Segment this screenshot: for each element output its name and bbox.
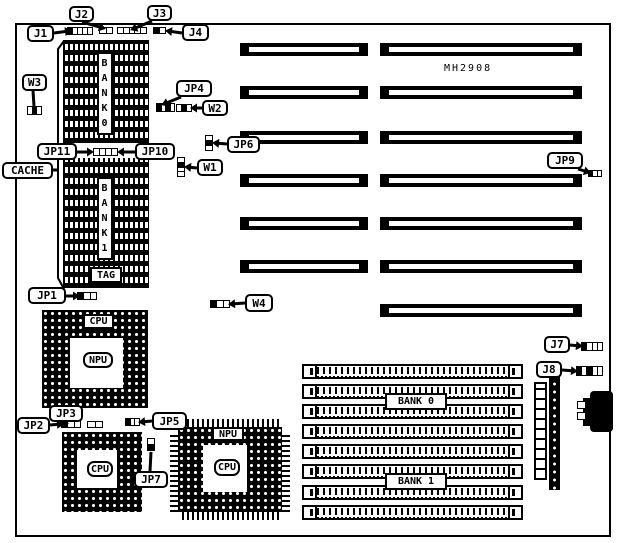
- simm-latch-right: [508, 404, 523, 419]
- callout-jp1: JP1: [28, 287, 66, 304]
- simm-contacts: [317, 444, 508, 459]
- callout-jp11: JP11: [37, 143, 77, 160]
- jumper-pin: [598, 343, 602, 350]
- jumper-pin: [96, 422, 103, 427]
- jumper-pin: [178, 172, 184, 176]
- jumper-pin: [112, 149, 117, 155]
- cpu-label-secondary: CPU: [87, 461, 113, 477]
- callout-j1: J1: [27, 25, 54, 42]
- callout-jp2: JP2: [17, 417, 50, 434]
- callout-jp10: JP10: [135, 143, 175, 160]
- simm-latch-left: [302, 384, 317, 399]
- jumper-jp10-11: [93, 148, 118, 156]
- qfp-leads-right: [282, 432, 290, 512]
- isa-slot-4: [240, 174, 368, 187]
- jumper-pin: [148, 445, 154, 450]
- callout-jp7: JP7: [134, 471, 168, 488]
- isa-slot-13: [380, 304, 582, 317]
- isa-slot-1: [240, 43, 368, 56]
- callout-w3: W3: [22, 74, 47, 91]
- simm-latch-right: [508, 505, 523, 520]
- qfp-leads-bottom: [182, 512, 279, 520]
- jumper-j8: [576, 366, 603, 376]
- simm-latch-right: [508, 364, 523, 379]
- jumper-jp7: [147, 438, 155, 451]
- jumper-jp2-b: [87, 421, 103, 428]
- simm-contacts: [317, 505, 508, 520]
- jumper-jp9: [588, 170, 602, 177]
- callout-jp5: JP5: [152, 412, 187, 430]
- keyboard-din-connector: [590, 391, 613, 432]
- callout-jp6: JP6: [227, 136, 260, 153]
- jumper-j7: [581, 342, 603, 351]
- keyboard-din-pin-bottom: [577, 412, 586, 420]
- npu-label-primary: NPU: [83, 352, 113, 368]
- jumper-jp4: [156, 103, 175, 112]
- callout-w1: W1: [197, 159, 223, 176]
- simm-latch-left: [302, 464, 317, 479]
- simm-bank0-label: BANK 0: [385, 393, 447, 410]
- callout-j2: J2: [69, 6, 94, 22]
- npu-label-qfp: NPU: [212, 427, 244, 441]
- callout-j4: J4: [182, 24, 209, 41]
- tag-label: TAG: [90, 267, 122, 283]
- isa-slot-6: [240, 260, 368, 273]
- simm-latch-right: [508, 464, 523, 479]
- jumper-jp6: [205, 135, 213, 151]
- simm-slot-8: [302, 505, 523, 520]
- jumper-pin: [91, 293, 96, 299]
- simm-contacts: [317, 424, 508, 439]
- jumper-w2: [176, 104, 192, 112]
- isa-slot-2: [240, 86, 368, 99]
- bank0-vertical-label: BANK0: [97, 52, 113, 135]
- keyboard-din-pin-top: [577, 401, 586, 409]
- simm-latch-left: [302, 444, 317, 459]
- jumper-w1: [177, 157, 185, 177]
- jumper-j4: [153, 27, 166, 34]
- callout-jp3: JP3: [49, 405, 83, 422]
- callout-j8: J8: [536, 361, 562, 378]
- isa-slot-12: [380, 260, 582, 273]
- simm-slot-4: [302, 424, 523, 439]
- simm-latch-left: [302, 404, 317, 419]
- simm-latch-left: [302, 364, 317, 379]
- cpu-label-primary: CPU: [83, 314, 114, 329]
- jumper-pin: [88, 422, 96, 427]
- jumper-pin: [598, 367, 602, 375]
- simm-latch-right: [508, 384, 523, 399]
- jumper-pin: [88, 28, 92, 34]
- simm-bank1-label: BANK 1: [385, 473, 447, 490]
- jumper-w3: [27, 106, 42, 115]
- simm-latch-left: [302, 485, 317, 500]
- jumper-pin: [171, 104, 175, 111]
- simm-latch-left: [302, 505, 317, 520]
- callout-j3: J3: [147, 5, 172, 21]
- jumper-w4: [210, 300, 230, 308]
- callout-jp9: JP9: [547, 152, 583, 169]
- simm-latch-right: [508, 424, 523, 439]
- jumper-pin: [141, 28, 146, 33]
- qfp-leads-left: [170, 432, 178, 512]
- jumper-j2: [99, 27, 113, 34]
- isa-slot-11: [380, 217, 582, 230]
- jumper-j3: [117, 27, 147, 34]
- callout-cache: CACHE: [2, 162, 53, 179]
- jumper-pin: [135, 419, 139, 425]
- power-connector-pins: [534, 382, 547, 480]
- isa-slot-10: [380, 174, 582, 187]
- callout-jp4: JP4: [176, 80, 212, 97]
- jumper-jp5: [125, 418, 140, 426]
- cpu-label-qfp: CPU: [214, 459, 240, 476]
- jumper-pin: [206, 146, 212, 150]
- callout-w4: W4: [245, 294, 273, 312]
- simm-latch-right: [508, 444, 523, 459]
- isa-slot-5: [240, 217, 368, 230]
- callout-w2: W2: [202, 100, 228, 116]
- jumper-pin: [107, 28, 113, 33]
- jumper-pin: [187, 105, 191, 111]
- jumper-pin: [224, 301, 229, 307]
- isa-slot-7: [380, 43, 582, 56]
- simm-contacts: [317, 364, 508, 379]
- simm-slot-1: [302, 364, 523, 379]
- board-model-label: MH2908: [444, 63, 492, 74]
- power-connector-header: [549, 372, 560, 490]
- jumper-jp1: [77, 292, 97, 300]
- jumper-pin: [160, 28, 165, 33]
- isa-slot-8: [380, 86, 582, 99]
- isa-slot-9: [380, 131, 582, 144]
- jumper-pin: [37, 107, 41, 114]
- motherboard-diagram: BANK0 BANK1 TAG CPU NPU CPU NPU CPU BANK…: [0, 0, 619, 543]
- simm-slot-5: [302, 444, 523, 459]
- qfp-leads-top: [182, 419, 279, 427]
- jumper-j1: [67, 27, 93, 35]
- simm-latch-left: [302, 424, 317, 439]
- callout-j7: J7: [544, 336, 570, 353]
- bank1-vertical-label: BANK1: [97, 177, 113, 260]
- jumper-pin: [598, 171, 601, 176]
- simm-latch-right: [508, 485, 523, 500]
